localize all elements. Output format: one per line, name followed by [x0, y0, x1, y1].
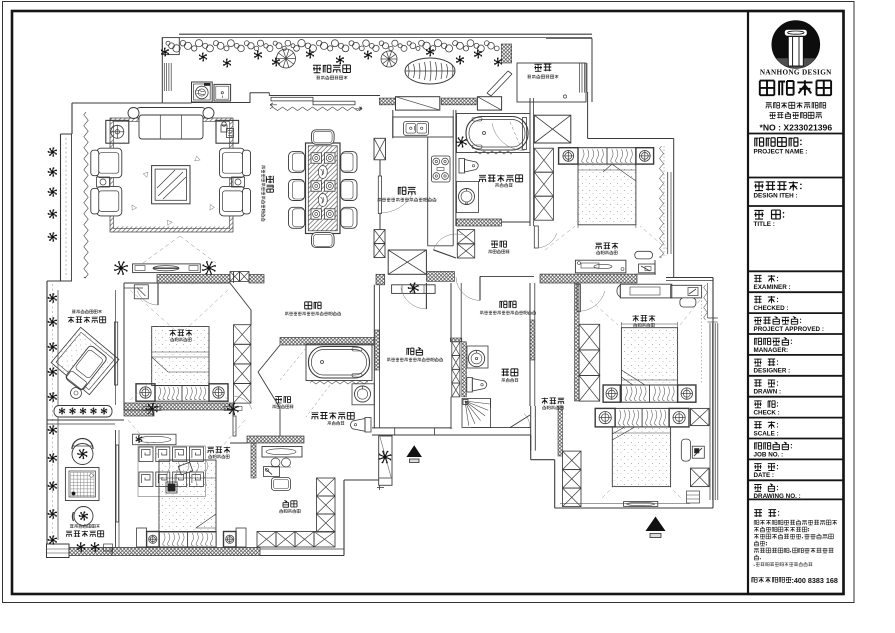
svg-text:SCALE :: SCALE : — [754, 430, 779, 437]
svg-text:JOB NO. :: JOB NO. : — [754, 451, 784, 458]
svg-text:DESIGNER :: DESIGNER : — [754, 368, 791, 375]
svg-text:CHECKED :: CHECKED : — [754, 305, 789, 312]
svg-text::400 8383 168: :400 8383 168 — [792, 576, 838, 585]
svg-text:EXAMINER :: EXAMINER : — [754, 284, 791, 291]
svg-text:*NO : X233021396: *NO : X233021396 — [759, 123, 832, 133]
svg-text:DESIGN ITEH :: DESIGN ITEH : — [754, 193, 798, 200]
svg-text:MANAGER:: MANAGER: — [754, 347, 789, 354]
svg-text:CHECK :: CHECK : — [754, 410, 780, 417]
svg-text:PROJECT NAME :: PROJECT NAME : — [754, 149, 808, 156]
svg-text:TITLE :: TITLE : — [754, 221, 775, 228]
svg-text:PROJECT APPROVED :: PROJECT APPROVED : — [754, 326, 824, 333]
svg-text:DRAWN :: DRAWN : — [754, 389, 782, 396]
svg-text:NANHONG DESIGN: NANHONG DESIGN — [760, 69, 832, 77]
svg-text:DRAWING NO. :: DRAWING NO. : — [754, 493, 801, 500]
svg-text:DATE :: DATE : — [754, 472, 775, 479]
